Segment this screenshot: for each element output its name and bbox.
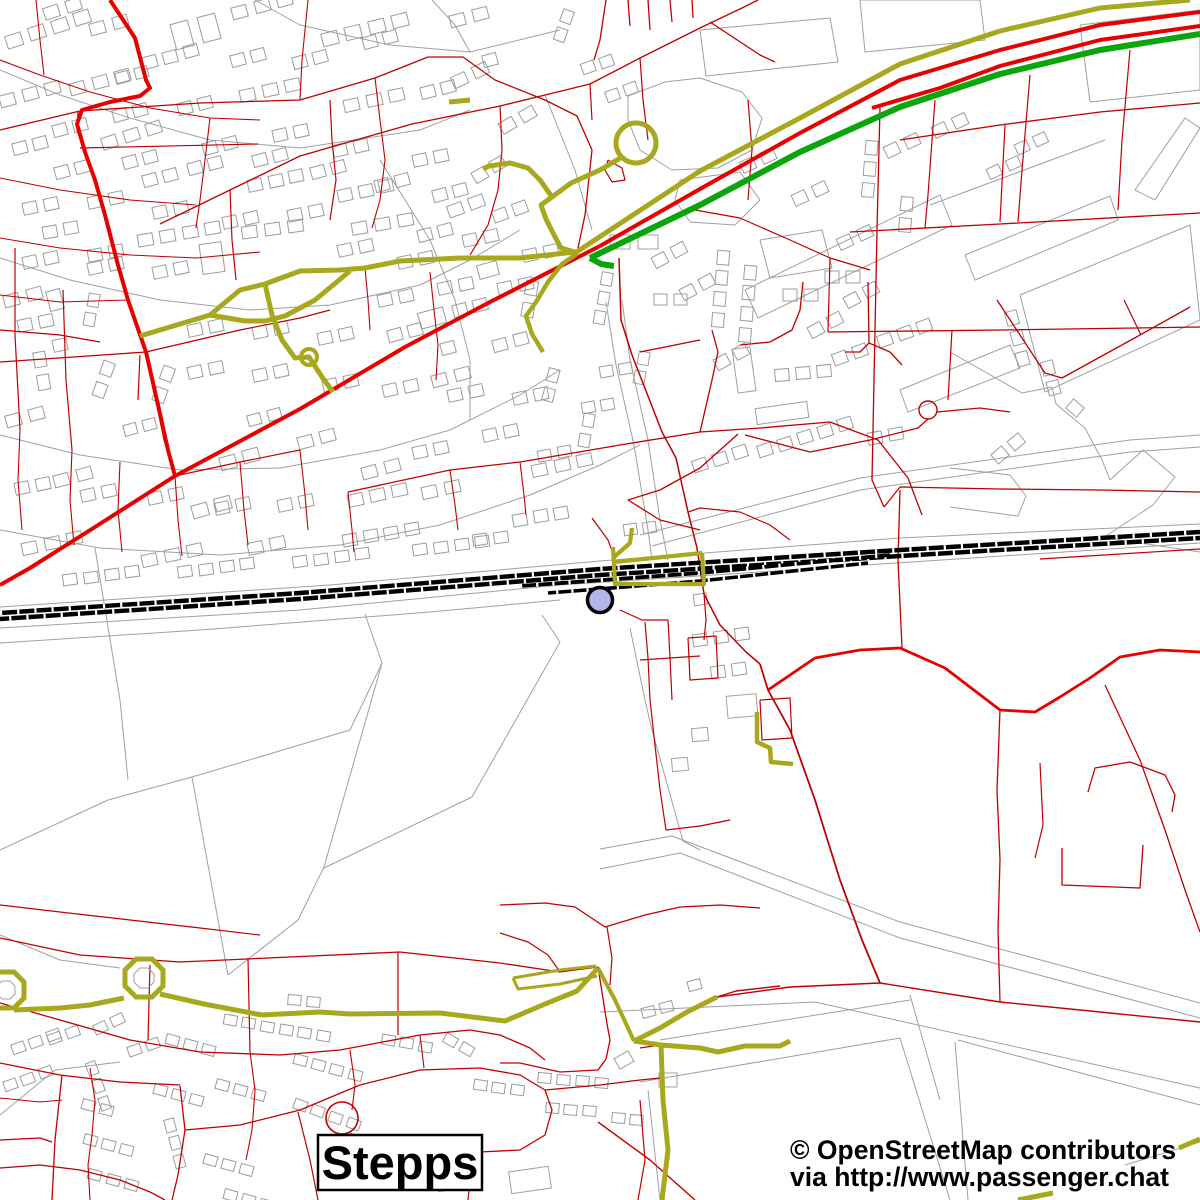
- svg-text:© OpenStreetMap contributors: © OpenStreetMap contributors: [790, 1135, 1176, 1165]
- svg-text:via http://www.passenger.chat: via http://www.passenger.chat: [790, 1162, 1169, 1192]
- svg-text:Stepps: Stepps: [322, 1136, 479, 1189]
